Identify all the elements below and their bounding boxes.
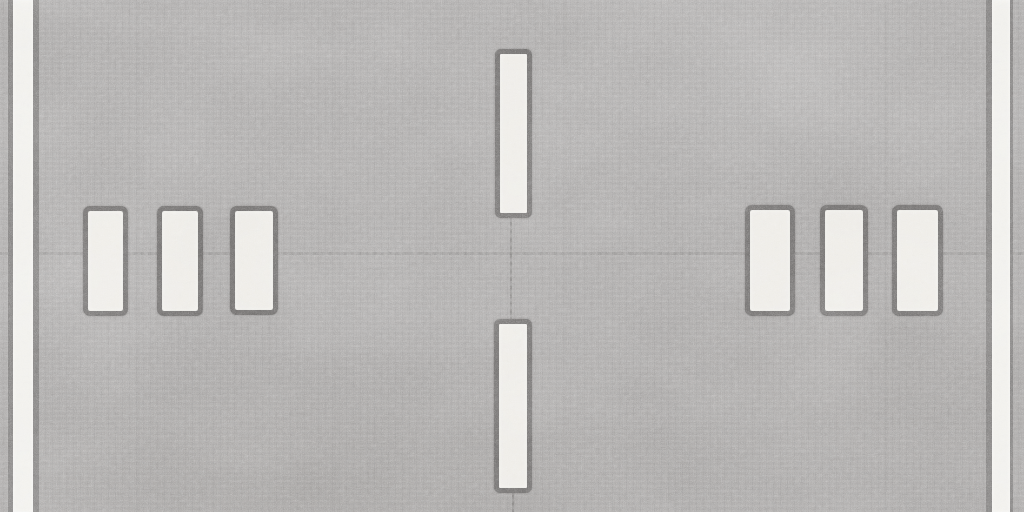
center-dash-bottom — [494, 319, 532, 493]
weathering-streak — [334, 0, 336, 512]
bar-right-1 — [745, 205, 795, 316]
bar-left-3 — [230, 206, 278, 315]
bar-right-3 — [892, 205, 943, 316]
center-dash-top — [495, 49, 532, 218]
bar-right-2 — [820, 205, 868, 316]
right-edge-line — [986, 0, 1013, 512]
weathering-streak — [137, 0, 139, 512]
horizontal-expansion-seam — [0, 252, 1024, 255]
left-edge-line — [8, 0, 39, 512]
road-texture — [0, 0, 1024, 512]
bar-left-2 — [157, 206, 203, 316]
weathering-streak — [885, 0, 887, 512]
bar-left-1 — [83, 206, 128, 316]
weathering-streak — [565, 0, 567, 512]
road-surface — [0, 0, 1024, 512]
centerline-crack — [512, 493, 514, 512]
centerline-crack — [510, 218, 512, 320]
